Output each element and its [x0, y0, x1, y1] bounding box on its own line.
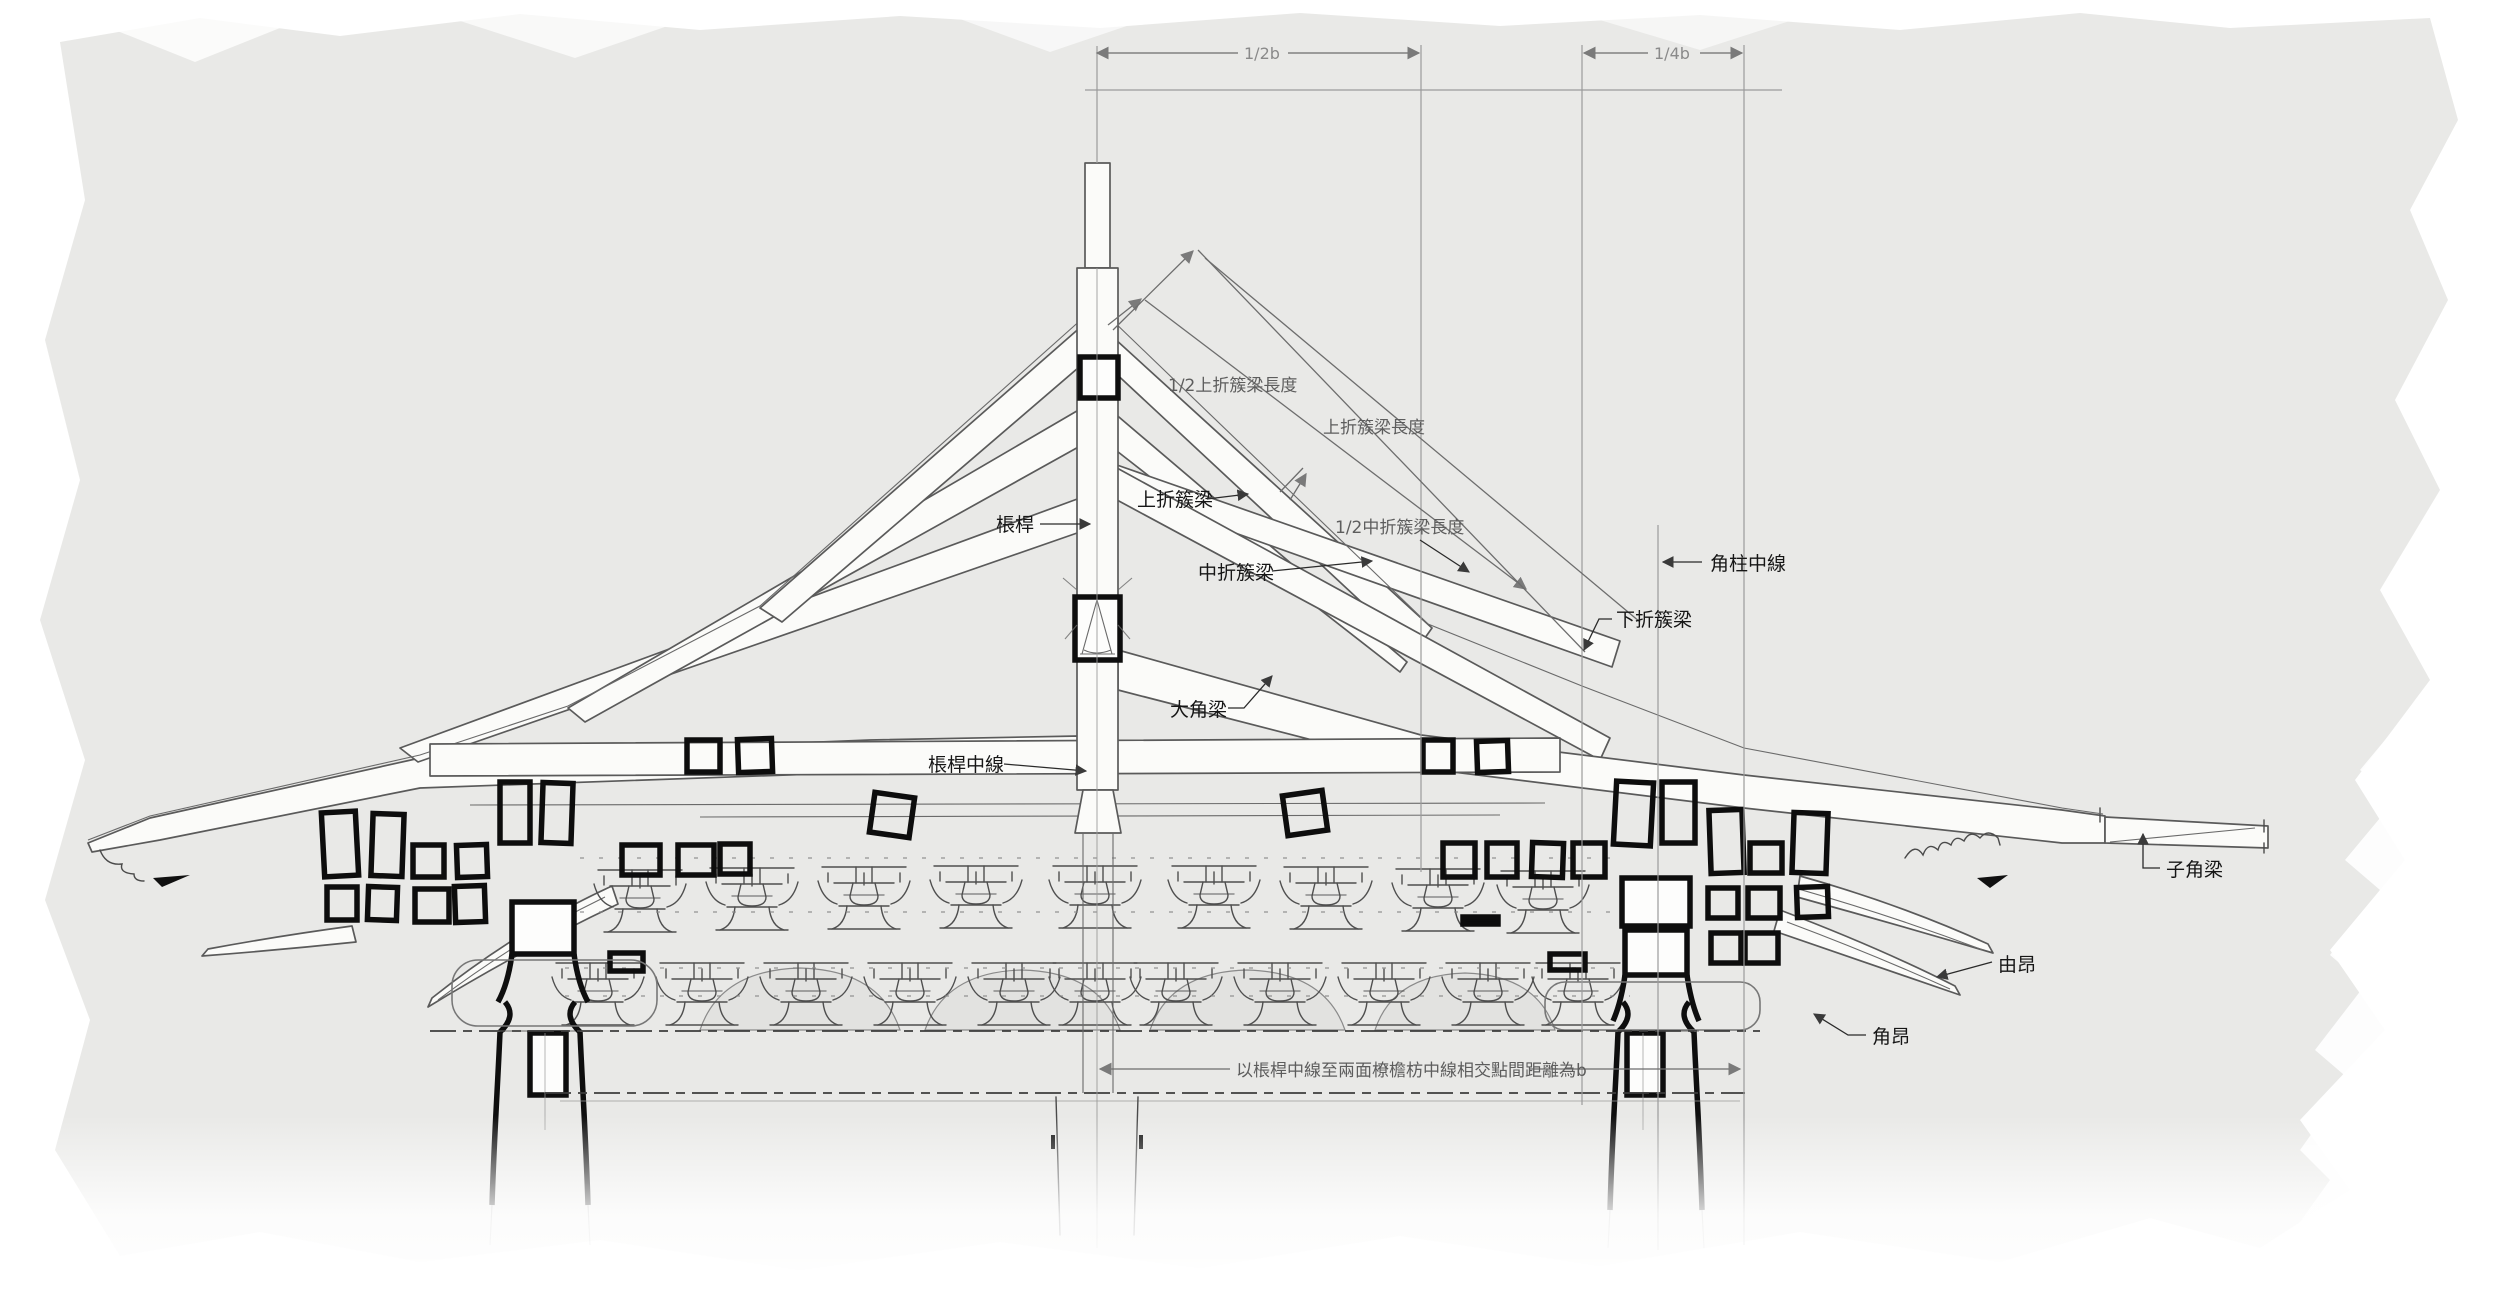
label-great-corner-beam: 大角梁 [1170, 699, 1227, 721]
label-half-mid-fold-length: 1/2中折簇梁長度 [1335, 518, 1464, 538]
sketch-canvas: 1/2b 1/4b 以棖桿中線至兩面橑檐枋中線相交點間距離為b 1/2上折簇梁長… [0, 0, 2494, 1296]
label-jiao-ang: 角昂 [1872, 1026, 1910, 1048]
label-mid-fold: 中折簇梁 [1198, 562, 1274, 584]
bottom-fade [0, 1115, 2494, 1296]
label-upper-fold: 上折簇梁 [1137, 489, 1213, 511]
label-you-ang: 由昂 [1998, 954, 2036, 976]
label-half-b: 1/2b [1244, 44, 1280, 63]
roof-section-drawing: 1/2b 1/4b 以棖桿中線至兩面橑檐枋中線相交點間距離為b 1/2上折簇梁長… [0, 0, 2494, 1296]
ridge-post-cap [1085, 163, 1110, 268]
label-bottom-note: 以棖桿中線至兩面橑檐枋中線相交點間距離為b [1236, 1061, 1587, 1081]
label-lower-fold: 下折簇梁 [1616, 609, 1692, 631]
label-ridge-post-centerline: 棖桿中線 [928, 754, 1004, 776]
label-half-upper-fold-length: 1/2上折簇梁長度 [1168, 376, 1297, 396]
ridge-post-joint-upper [1080, 357, 1118, 398]
label-upper-fold-length: 上折簇梁長度 [1323, 418, 1425, 438]
label-sub-corner-beam: 子角梁 [2166, 859, 2223, 881]
label-corner-column-centerline: 角柱中線 [1710, 553, 1786, 575]
ridge-post-splay [1075, 790, 1121, 833]
label-ridge-post: 棖桿 [996, 514, 1034, 536]
paper-background [40, 8, 2494, 1296]
label-quarter-b: 1/4b [1654, 44, 1690, 63]
